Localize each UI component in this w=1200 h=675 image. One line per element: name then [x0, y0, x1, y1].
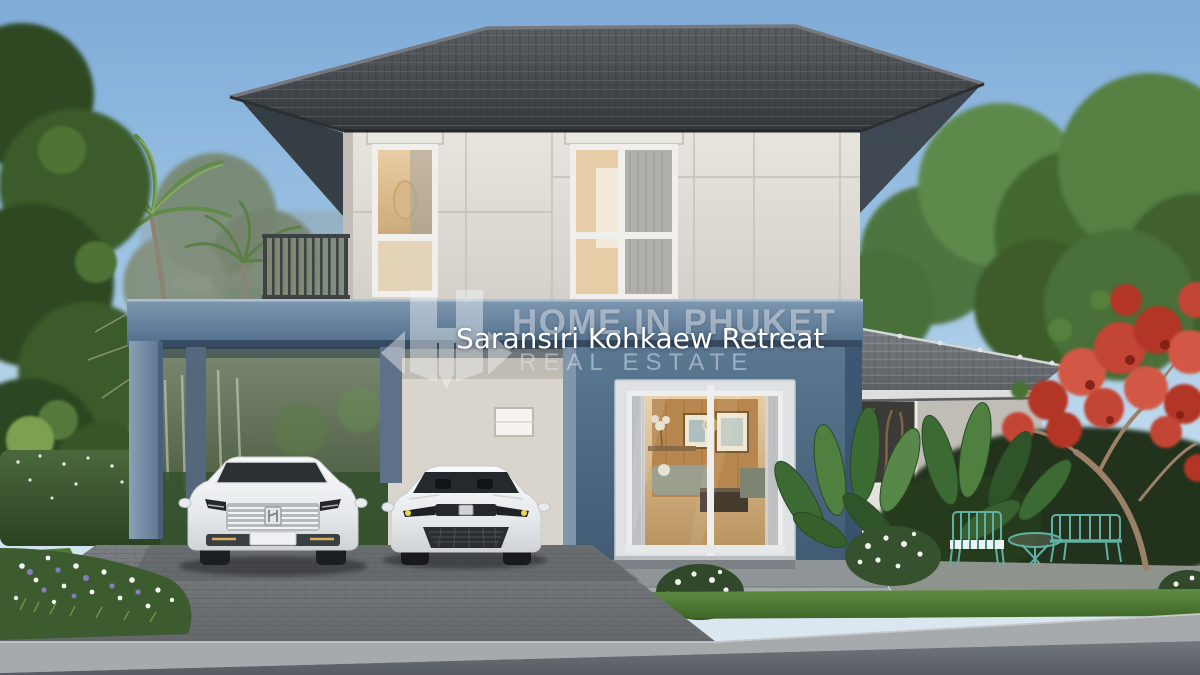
carport-post-front — [129, 341, 163, 539]
lawn-right — [636, 589, 1200, 619]
balcony-railing — [262, 234, 350, 300]
sliding-glass-door — [615, 380, 795, 564]
scene-canvas — [0, 0, 1200, 675]
window-upper-left — [367, 127, 443, 297]
rendered-photo: HOME IN PHUKET REAL ESTATE Saransiri Koh… — [0, 0, 1200, 675]
window-upper-right — [565, 126, 683, 300]
